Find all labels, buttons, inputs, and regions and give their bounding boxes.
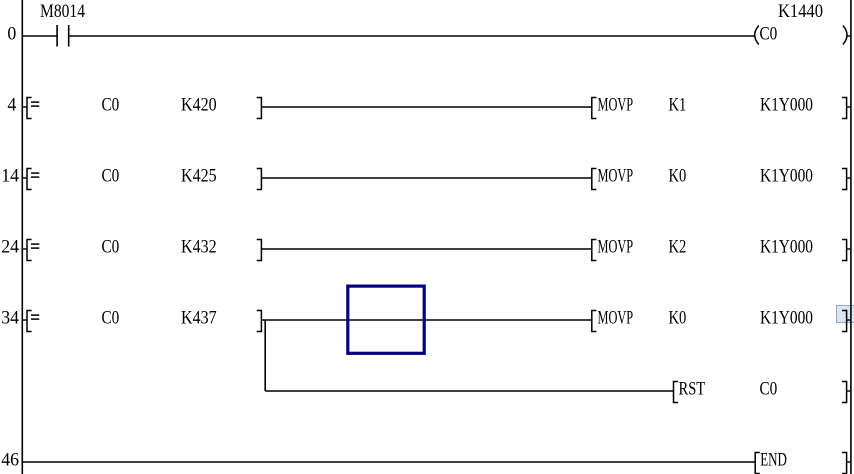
svg-text:K1: K1 [669,95,687,116]
svg-text:K1Y000: K1Y000 [760,308,813,329]
svg-text:34: 34 [1,308,19,329]
svg-text:K0: K0 [669,166,687,187]
svg-text:K425: K425 [181,166,217,187]
svg-text:K1Y000: K1Y000 [760,166,813,187]
svg-text:MOVP: MOVP [598,166,634,187]
svg-text:END: END [760,450,787,471]
svg-text:MOVP: MOVP [598,237,634,258]
svg-text:C0: C0 [760,379,778,400]
svg-text:K0: K0 [669,308,687,329]
svg-text:MOVP: MOVP [598,95,634,116]
svg-text:RST: RST [679,379,706,400]
svg-text:K1440: K1440 [778,1,823,22]
svg-text:M8014: M8014 [40,1,85,22]
svg-text:K2: K2 [669,237,687,258]
svg-text:46: 46 [1,450,19,471]
svg-text:C0: C0 [760,24,778,45]
svg-text:C0: C0 [102,166,120,187]
svg-text:C0: C0 [102,95,120,116]
svg-text:0: 0 [7,24,16,45]
svg-text:K420: K420 [181,95,217,116]
svg-text:K1Y000: K1Y000 [760,237,813,258]
svg-text:K432: K432 [181,237,217,258]
svg-text:14: 14 [1,166,19,187]
svg-text:K1Y000: K1Y000 [760,95,813,116]
svg-text:C0: C0 [102,237,120,258]
svg-text:MOVP: MOVP [598,308,634,329]
svg-text:24: 24 [1,237,19,258]
svg-text:K437: K437 [181,308,217,329]
svg-text:4: 4 [7,95,16,116]
svg-text:C0: C0 [102,308,120,329]
